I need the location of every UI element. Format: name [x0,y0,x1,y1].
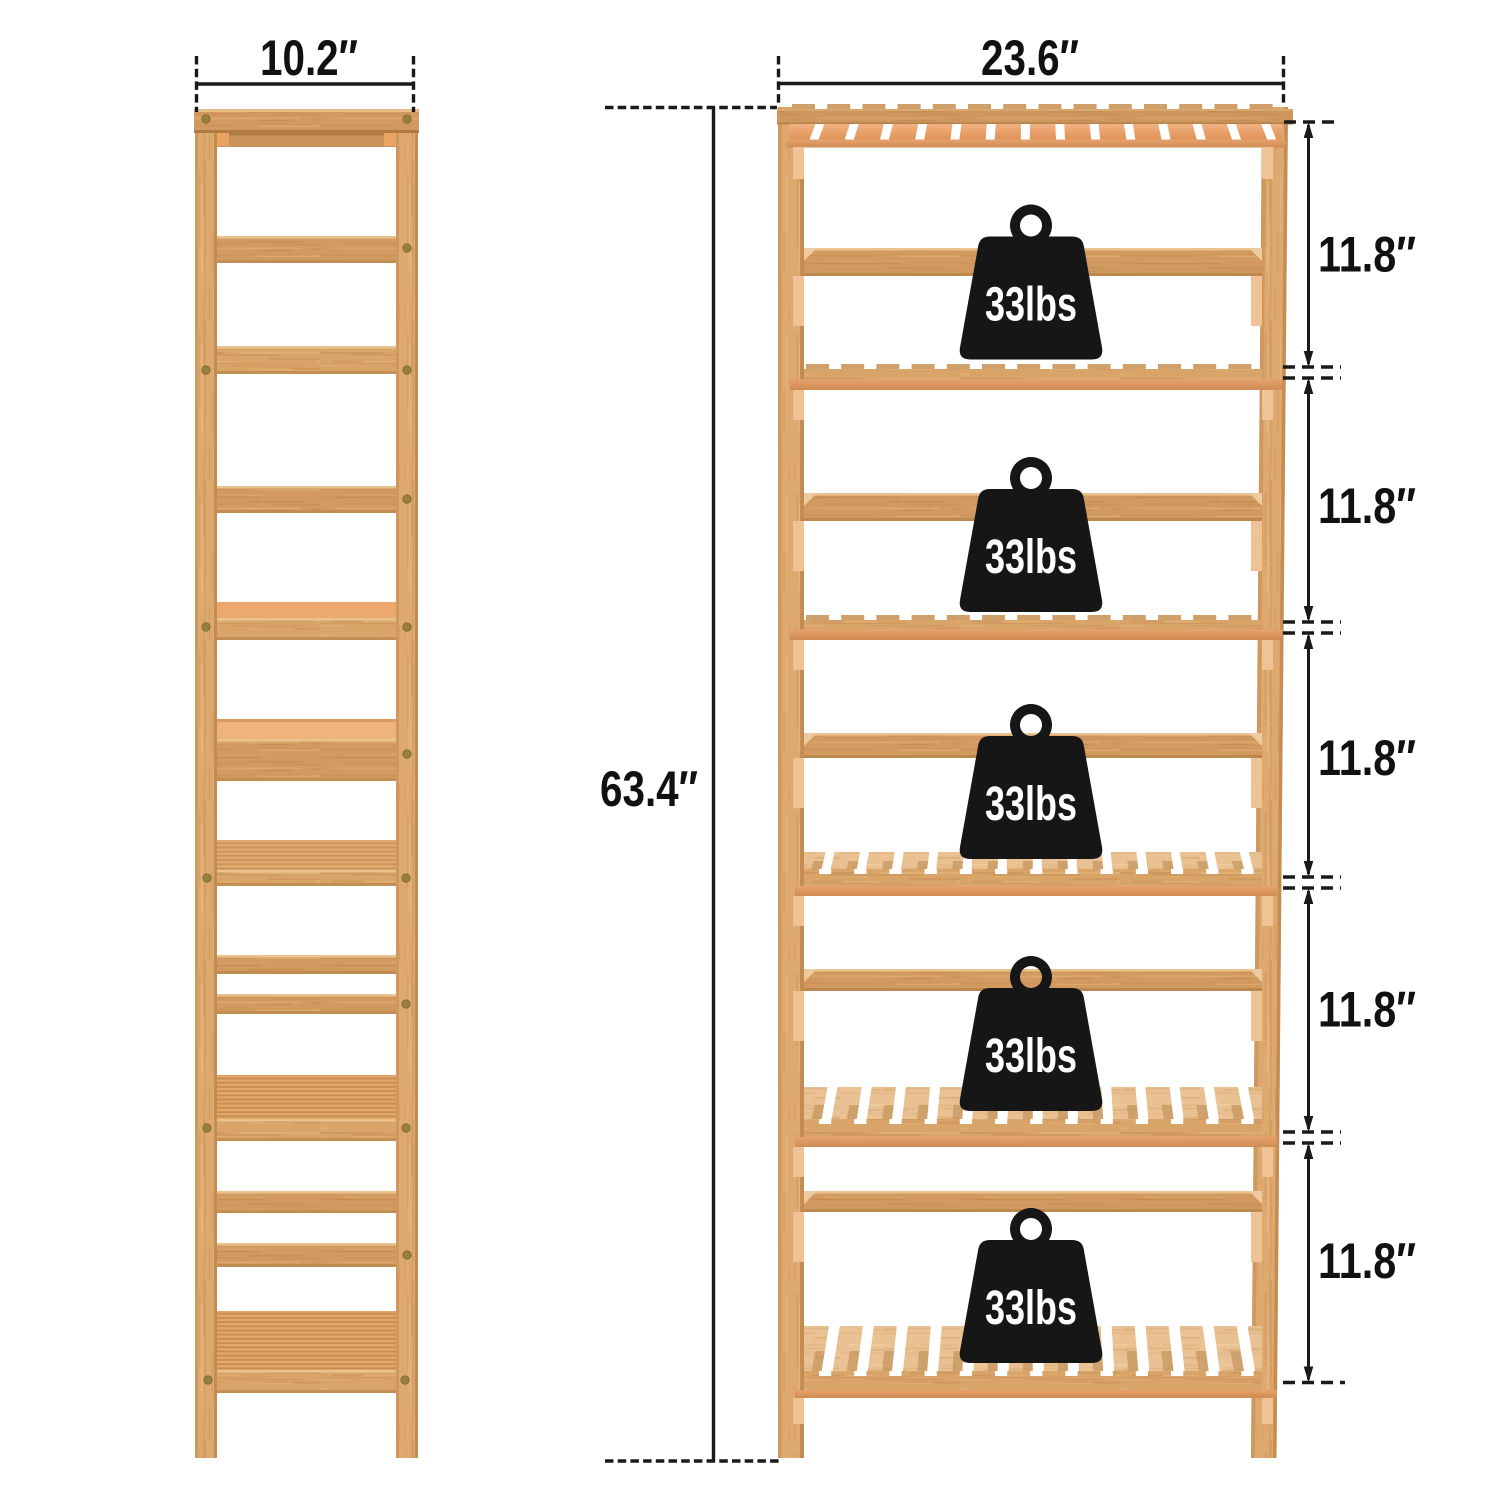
svg-text:63.4″: 63.4″ [600,761,698,817]
svg-text:11.8″: 11.8″ [1318,478,1416,534]
svg-text:11.8″: 11.8″ [1318,730,1416,786]
svg-text:33lbs: 33lbs [985,1030,1077,1083]
svg-text:33lbs: 33lbs [985,778,1077,831]
svg-text:33lbs: 33lbs [985,531,1077,584]
svg-text:10.2″: 10.2″ [260,30,358,86]
svg-text:23.6″: 23.6″ [981,30,1079,86]
svg-text:11.8″: 11.8″ [1318,982,1416,1038]
svg-text:33lbs: 33lbs [985,279,1077,332]
svg-text:11.8″: 11.8″ [1318,1233,1416,1289]
svg-text:33lbs: 33lbs [985,1282,1077,1335]
svg-text:11.8″: 11.8″ [1318,227,1416,283]
